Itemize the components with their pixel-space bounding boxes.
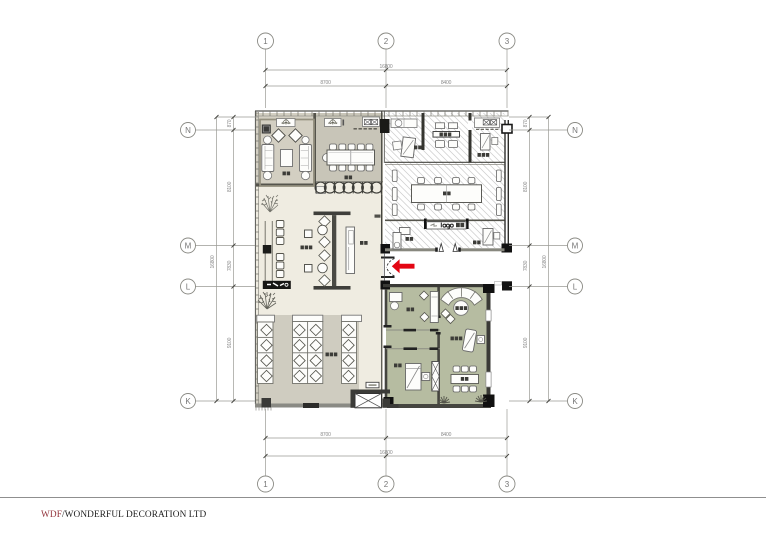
svg-text:7830: 7830 [523,260,529,271]
svg-text:7830: 7830 [227,260,233,271]
svg-text:870: 870 [523,119,529,127]
svg-text:M: M [185,242,192,251]
svg-text:8400: 8400 [441,432,452,438]
svg-text:N: N [572,126,578,135]
svg-text:3: 3 [505,480,510,489]
svg-text:16800: 16800 [210,255,216,268]
svg-text:16800: 16800 [380,450,393,456]
svg-text:8100: 8100 [227,181,233,192]
svg-text:1: 1 [263,37,268,46]
svg-text:WDF/WONDERFUL DECORATION LTD: WDF/WONDERFUL DECORATION LTD [41,510,207,520]
svg-text:N: N [185,126,191,135]
svg-text:9100: 9100 [523,337,529,348]
svg-text:8100: 8100 [523,181,529,192]
svg-text:870: 870 [227,119,233,127]
svg-text:K: K [572,397,578,406]
svg-text:L: L [573,283,578,292]
svg-text:16800: 16800 [380,64,393,70]
svg-text:M: M [572,242,579,251]
svg-text:K: K [185,397,191,406]
svg-text:3: 3 [505,37,510,46]
svg-text:8700: 8700 [320,432,331,438]
svg-text:2: 2 [384,37,389,46]
svg-text:8700: 8700 [320,80,331,86]
svg-text:2: 2 [384,480,389,489]
svg-text:8400: 8400 [441,80,452,86]
svg-text:L: L [186,283,191,292]
svg-text:16800: 16800 [542,255,548,268]
svg-text:9100: 9100 [227,337,233,348]
svg-text:1: 1 [263,480,268,489]
